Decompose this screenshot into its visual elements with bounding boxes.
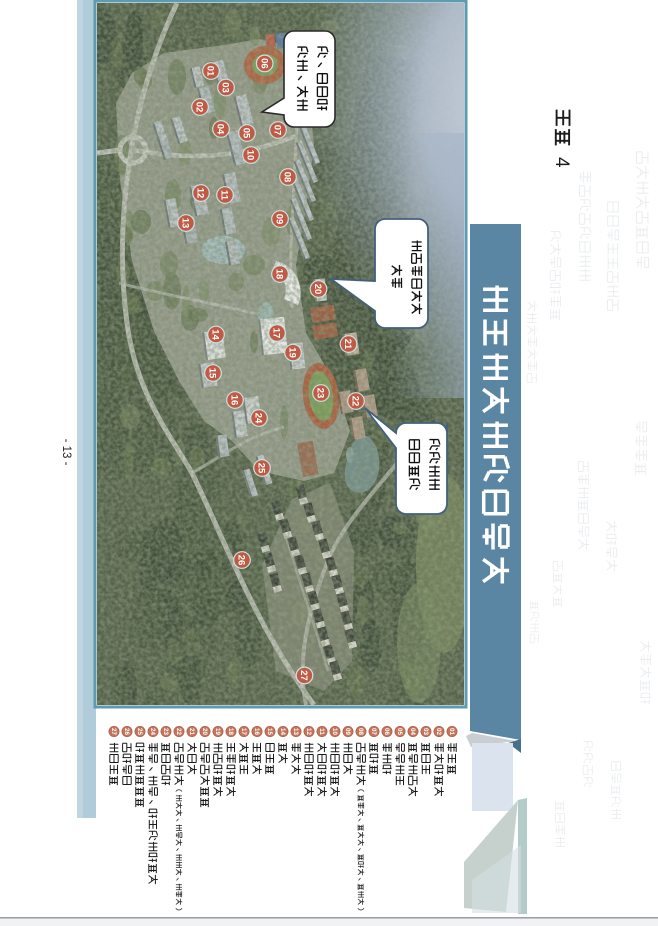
svg-text:20: 20 bbox=[312, 284, 323, 295]
svg-text:17: 17 bbox=[271, 328, 282, 339]
svg-text:06: 06 bbox=[258, 58, 269, 69]
svg-text:24: 24 bbox=[253, 413, 264, 424]
svg-text:13: 13 bbox=[292, 728, 299, 735]
svg-text:23: 23 bbox=[315, 388, 326, 399]
svg-text:19: 19 bbox=[287, 347, 298, 358]
svg-text:10: 10 bbox=[245, 150, 256, 161]
svg-text:03: 03 bbox=[220, 82, 231, 93]
svg-text:21: 21 bbox=[188, 728, 195, 735]
svg-text:07: 07 bbox=[272, 125, 283, 136]
svg-text:15: 15 bbox=[207, 368, 218, 379]
svg-text:07: 07 bbox=[370, 728, 377, 735]
svg-text:17: 17 bbox=[240, 728, 247, 735]
svg-text:10: 10 bbox=[331, 728, 338, 735]
svg-text:04: 04 bbox=[409, 728, 416, 735]
svg-text:25: 25 bbox=[136, 728, 143, 735]
svg-text:15: 15 bbox=[266, 728, 273, 735]
svg-text:11: 11 bbox=[318, 728, 325, 735]
svg-text:22: 22 bbox=[175, 728, 182, 735]
svg-text:12: 12 bbox=[305, 728, 312, 735]
svg-text:21: 21 bbox=[342, 339, 353, 350]
svg-text:14: 14 bbox=[210, 329, 221, 340]
svg-text:22: 22 bbox=[350, 396, 361, 407]
svg-text:13: 13 bbox=[180, 218, 191, 229]
svg-text:27: 27 bbox=[298, 670, 309, 681]
svg-text:18: 18 bbox=[274, 269, 285, 280]
svg-text:18: 18 bbox=[227, 728, 234, 735]
svg-text:08: 08 bbox=[282, 172, 293, 183]
svg-text:26: 26 bbox=[123, 728, 130, 735]
svg-text:20: 20 bbox=[201, 728, 208, 735]
svg-text:01: 01 bbox=[448, 728, 455, 735]
svg-text:02: 02 bbox=[194, 102, 205, 113]
svg-text:25: 25 bbox=[256, 463, 267, 474]
svg-text:- 13 -: - 13 - bbox=[60, 439, 72, 466]
svg-text:19: 19 bbox=[214, 728, 221, 735]
svg-text:27: 27 bbox=[110, 728, 117, 735]
svg-text:24: 24 bbox=[149, 728, 156, 735]
svg-text:03: 03 bbox=[422, 728, 429, 735]
svg-text:05: 05 bbox=[396, 728, 403, 735]
svg-text:06: 06 bbox=[383, 728, 390, 735]
svg-text:23: 23 bbox=[162, 728, 169, 735]
svg-text:16: 16 bbox=[253, 728, 260, 735]
svg-text:08: 08 bbox=[357, 728, 364, 735]
svg-text:26: 26 bbox=[236, 555, 247, 566]
svg-text:04: 04 bbox=[215, 124, 226, 135]
svg-text:4: 4 bbox=[551, 157, 572, 168]
svg-text:01: 01 bbox=[205, 66, 216, 77]
svg-text:12: 12 bbox=[195, 188, 206, 199]
svg-text:05: 05 bbox=[241, 128, 252, 139]
svg-text:16: 16 bbox=[229, 395, 240, 406]
svg-text:14: 14 bbox=[279, 728, 286, 735]
svg-text:09: 09 bbox=[274, 214, 285, 225]
svg-text:02: 02 bbox=[435, 728, 442, 735]
svg-text:11: 11 bbox=[219, 190, 230, 201]
svg-text:09: 09 bbox=[344, 728, 351, 735]
